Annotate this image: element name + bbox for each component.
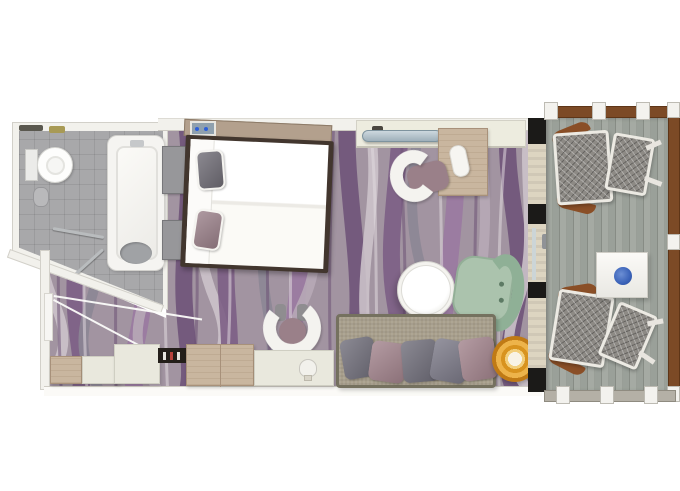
double-bed	[180, 135, 334, 273]
bathtub-faucet	[130, 140, 144, 147]
railing-post	[636, 102, 650, 120]
wall-segment	[528, 118, 546, 144]
bed-pillow-gray	[195, 149, 226, 191]
railing-post	[600, 386, 614, 404]
entrance-door-leaf	[44, 293, 53, 341]
control-light	[195, 127, 199, 131]
coffee-table	[397, 261, 455, 319]
nightstand	[162, 146, 186, 194]
vanity-lamp-base	[304, 375, 312, 381]
sofa	[336, 314, 496, 388]
control-light	[204, 127, 208, 131]
blue-bowl	[614, 267, 632, 285]
wall-segment	[528, 368, 546, 392]
railing-post	[556, 386, 570, 404]
desk-chair-shell	[387, 147, 442, 205]
balcony-side-table	[596, 252, 648, 298]
hand-shower	[33, 187, 49, 207]
vanity-chair	[262, 298, 322, 358]
wall-segment	[528, 282, 546, 298]
minibar-bottle	[177, 352, 180, 360]
curtain-strip	[528, 118, 546, 392]
wardrobe-cabinet	[186, 344, 254, 386]
railing-post	[544, 102, 558, 120]
floorplan	[0, 0, 680, 491]
sliding-door-glass	[532, 228, 536, 280]
bedside-control-pad	[190, 121, 216, 136]
railing-post	[592, 102, 606, 120]
wardrobe-cabinet	[50, 356, 82, 384]
wall-segment	[528, 204, 546, 224]
chair-seat	[604, 132, 655, 196]
chair-backrest	[553, 130, 614, 206]
railing-right	[668, 102, 680, 402]
bed-pillow-mauve	[191, 208, 225, 252]
towel-shelf	[19, 125, 43, 131]
desk-phone	[448, 144, 471, 179]
minibar-bottle	[163, 352, 166, 360]
minibar-niche	[158, 348, 186, 363]
railing-top	[544, 106, 676, 118]
wall-tv	[362, 130, 442, 142]
railing-post	[667, 102, 680, 118]
minibar-bottle	[170, 352, 173, 360]
cabinet	[114, 344, 160, 384]
cabinet-seam	[220, 345, 221, 387]
bathtub-seat	[120, 242, 152, 264]
desk-chair	[390, 150, 446, 206]
toiletry-item	[49, 126, 65, 133]
railing-post	[667, 234, 680, 250]
shower-head	[19, 273, 31, 285]
railing-post	[644, 386, 658, 404]
vanity-cabinet	[254, 350, 334, 386]
toilet-bowl-inner	[46, 156, 65, 175]
lounge-chair	[548, 120, 664, 213]
bathtub	[107, 135, 165, 271]
